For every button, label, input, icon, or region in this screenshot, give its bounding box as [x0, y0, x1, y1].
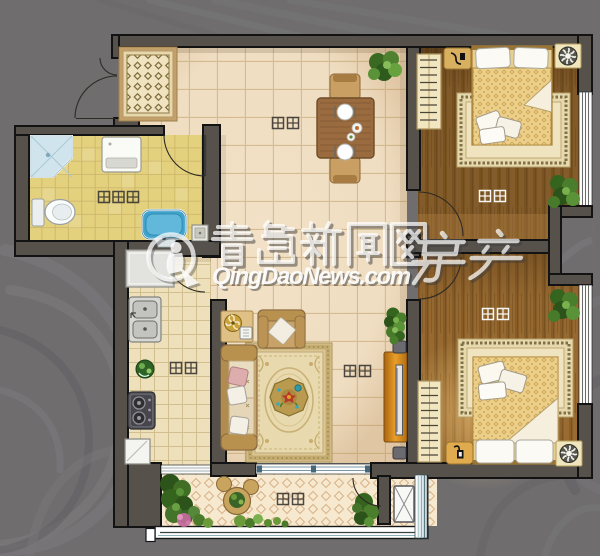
svg-text:QingDaoNews.com: QingDaoNews.com	[212, 263, 411, 290]
